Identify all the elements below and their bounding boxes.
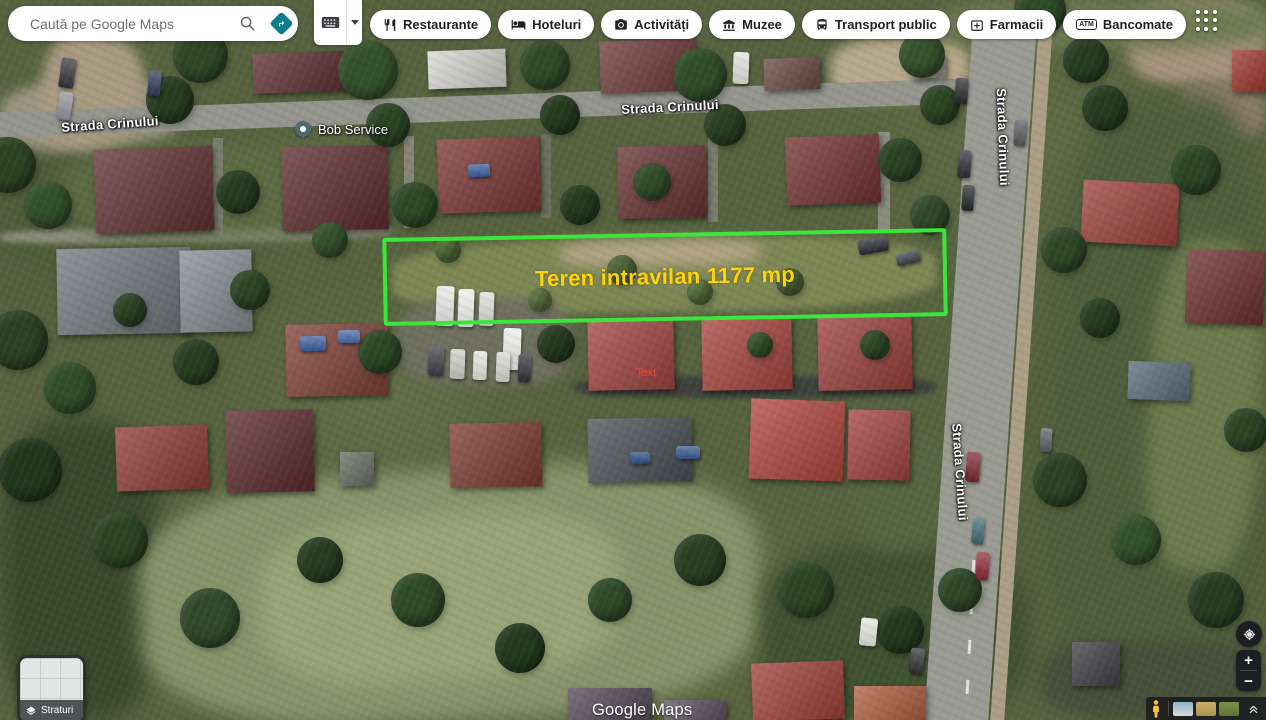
keyboard-button[interactable] [314,0,347,45]
pegman-icon [1150,700,1162,718]
tree [747,332,773,358]
keyboard-icon [321,16,340,29]
tree [312,222,348,258]
chip-label: Activități [634,17,689,32]
tree [495,623,545,673]
hotel-icon [511,17,526,32]
vehicle [468,164,490,178]
vehicle [1013,120,1027,147]
vehicle [965,452,981,483]
map-canvas[interactable]: Strada Crinului Strada Crinului Strada C… [0,0,1266,720]
tree [92,512,148,568]
tree [1188,572,1244,628]
building-roof [568,688,652,720]
place-bob-service[interactable]: Bob Service [295,121,388,137]
building-roof [1072,642,1120,686]
chip-label: Muzee [742,17,782,32]
tree [44,362,96,414]
building-roof [1232,50,1266,92]
divider [1168,701,1169,716]
imagery-thumbnail[interactable] [1173,702,1193,716]
building-roof [1185,249,1266,326]
museum-icon [722,18,736,32]
imagery-thumbnail[interactable] [1196,702,1216,716]
layers-strip: Straturi [20,700,83,720]
tree [1033,453,1087,507]
atm-icon: ATM [1076,19,1097,30]
chip-label: Bancomate [1103,17,1173,32]
chip-hoteluri[interactable]: Hoteluri [498,10,594,39]
input-tools-dropdown[interactable] [347,0,362,45]
tree [878,138,922,182]
zoom-out-button[interactable]: − [1236,671,1261,691]
vehicle [1039,428,1053,453]
building-roof [751,660,845,720]
tree [1171,145,1221,195]
vehicle [427,346,444,377]
chip-label: Transport public [835,17,937,32]
tree [860,330,890,360]
my-location-icon [1242,627,1257,642]
road-segment [708,134,718,222]
tree [113,293,147,327]
imagery-thumbnail[interactable] [1219,702,1239,716]
bottom-right-toolbar [1146,697,1266,720]
directions-button[interactable] [264,7,298,41]
building-roof [115,424,209,491]
vehicle [957,150,972,179]
search-button[interactable] [230,7,264,41]
pharmacy-icon [970,18,984,32]
building-roof [587,317,674,390]
tree [24,181,72,229]
zoom-controls: + − [1236,650,1261,691]
chip-bancomate[interactable]: ATM Bancomate [1063,10,1186,39]
building-roof [1127,361,1190,401]
tree [674,534,726,586]
tree [776,268,804,296]
vehicle [518,354,532,382]
vehicle [975,552,990,581]
vehicle [449,349,465,380]
vehicle [300,336,326,351]
tree [1063,37,1109,83]
tree [588,578,632,622]
building-roof [340,452,374,486]
camera-icon [614,18,628,32]
tree [520,40,570,90]
chevron-up-double-icon [1247,702,1260,715]
building-roof [225,409,314,493]
tree [180,588,240,648]
my-location-button[interactable] [1236,621,1262,647]
directions-icon [269,11,293,35]
tree [910,195,950,235]
chip-label: Restaurante [403,17,478,32]
building-roof [449,422,542,488]
vehicle [961,185,975,212]
chip-muzee[interactable]: Muzee [709,10,795,39]
vehicle [630,452,650,464]
place-pin-icon[interactable] [295,121,311,137]
search-input[interactable] [28,15,230,33]
tree [392,182,438,228]
chip-label: Farmacii [990,17,1043,32]
building-roof [1080,180,1179,247]
tree [297,537,343,583]
building-roof [701,315,792,391]
collapse-button[interactable] [1243,697,1263,720]
vehicle [147,69,162,96]
chip-farmacii[interactable]: Farmacii [957,10,1056,39]
input-tools [314,0,362,45]
search-icon [239,15,256,32]
tree [607,255,637,285]
tree [0,438,62,502]
chip-activitati[interactable]: Activități [601,10,702,39]
building-roof [847,409,910,480]
vehicle [338,330,360,343]
building-roof [427,49,506,90]
tree [435,237,461,263]
tree [1080,298,1120,338]
tree [673,48,727,102]
tree [358,330,402,374]
tree [230,270,270,310]
building-roof [94,146,215,234]
layers-icon [25,705,37,717]
building-roof [763,57,820,91]
vehicle [732,52,749,85]
building-roof [785,134,881,205]
building-roof [281,145,388,231]
tree [1041,227,1087,273]
bus-icon [815,18,829,32]
vehicle [859,617,879,647]
restaurant-icon [383,18,397,32]
building-roof [664,700,726,720]
road-segment [541,134,551,218]
vehicle [954,78,969,105]
tree [687,279,713,305]
vehicle [472,351,487,380]
google-maps-app: Strada Crinului Strada Crinului Strada C… [0,0,1266,720]
tree [560,185,600,225]
chevron-down-icon [351,20,359,25]
tree [391,573,445,627]
layers-button[interactable]: Straturi [17,655,86,720]
vehicle [435,286,454,327]
search-bar [8,6,298,41]
tree [633,163,671,201]
building-roof [854,686,926,720]
tree [528,288,552,312]
tree [216,170,260,214]
place-label: Bob Service [318,122,388,137]
tree [540,95,580,135]
chip-transport-public[interactable]: Transport public [802,10,950,39]
tree [338,40,398,100]
zoom-in-button[interactable]: + [1236,650,1261,670]
vehicle [676,446,700,459]
tree [704,104,746,146]
tree [876,606,924,654]
vehicle [909,647,926,674]
chip-restaurante[interactable]: Restaurante [370,10,491,39]
tree [537,325,575,363]
pegman-control[interactable] [1146,697,1166,720]
vehicle [457,289,474,328]
tree [0,310,48,370]
category-chips: Restaurante Hoteluri Activități Muzee Tr… [370,10,1186,39]
chip-label: Hoteluri [532,17,581,32]
vehicle [478,292,494,327]
tree [1082,85,1128,131]
vehicle [495,352,510,382]
tree [1111,515,1161,565]
tree [173,339,219,385]
tree [778,562,834,618]
layers-label: Straturi [41,705,73,716]
vehicle [971,518,985,545]
tree [1224,408,1266,452]
building-roof [749,398,846,481]
apps-grid-button[interactable] [1196,10,1218,32]
